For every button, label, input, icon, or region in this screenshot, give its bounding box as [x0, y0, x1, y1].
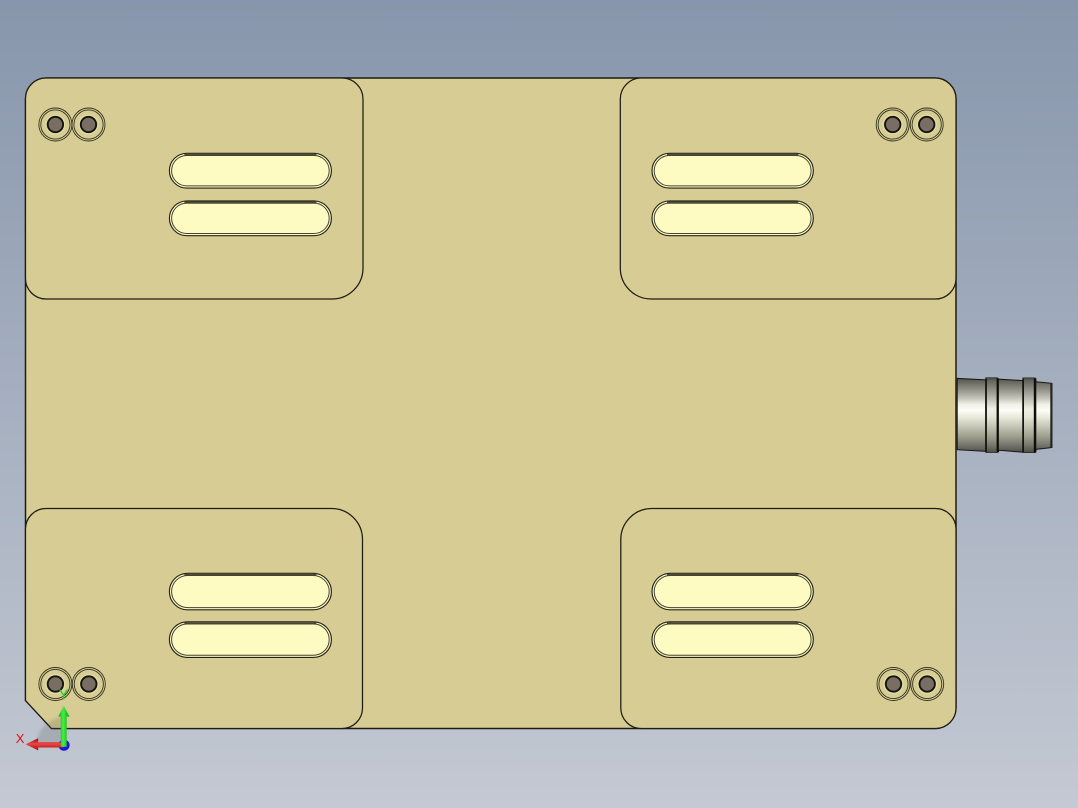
- svg-text:Y: Y: [59, 687, 69, 704]
- svg-text:X: X: [16, 731, 25, 746]
